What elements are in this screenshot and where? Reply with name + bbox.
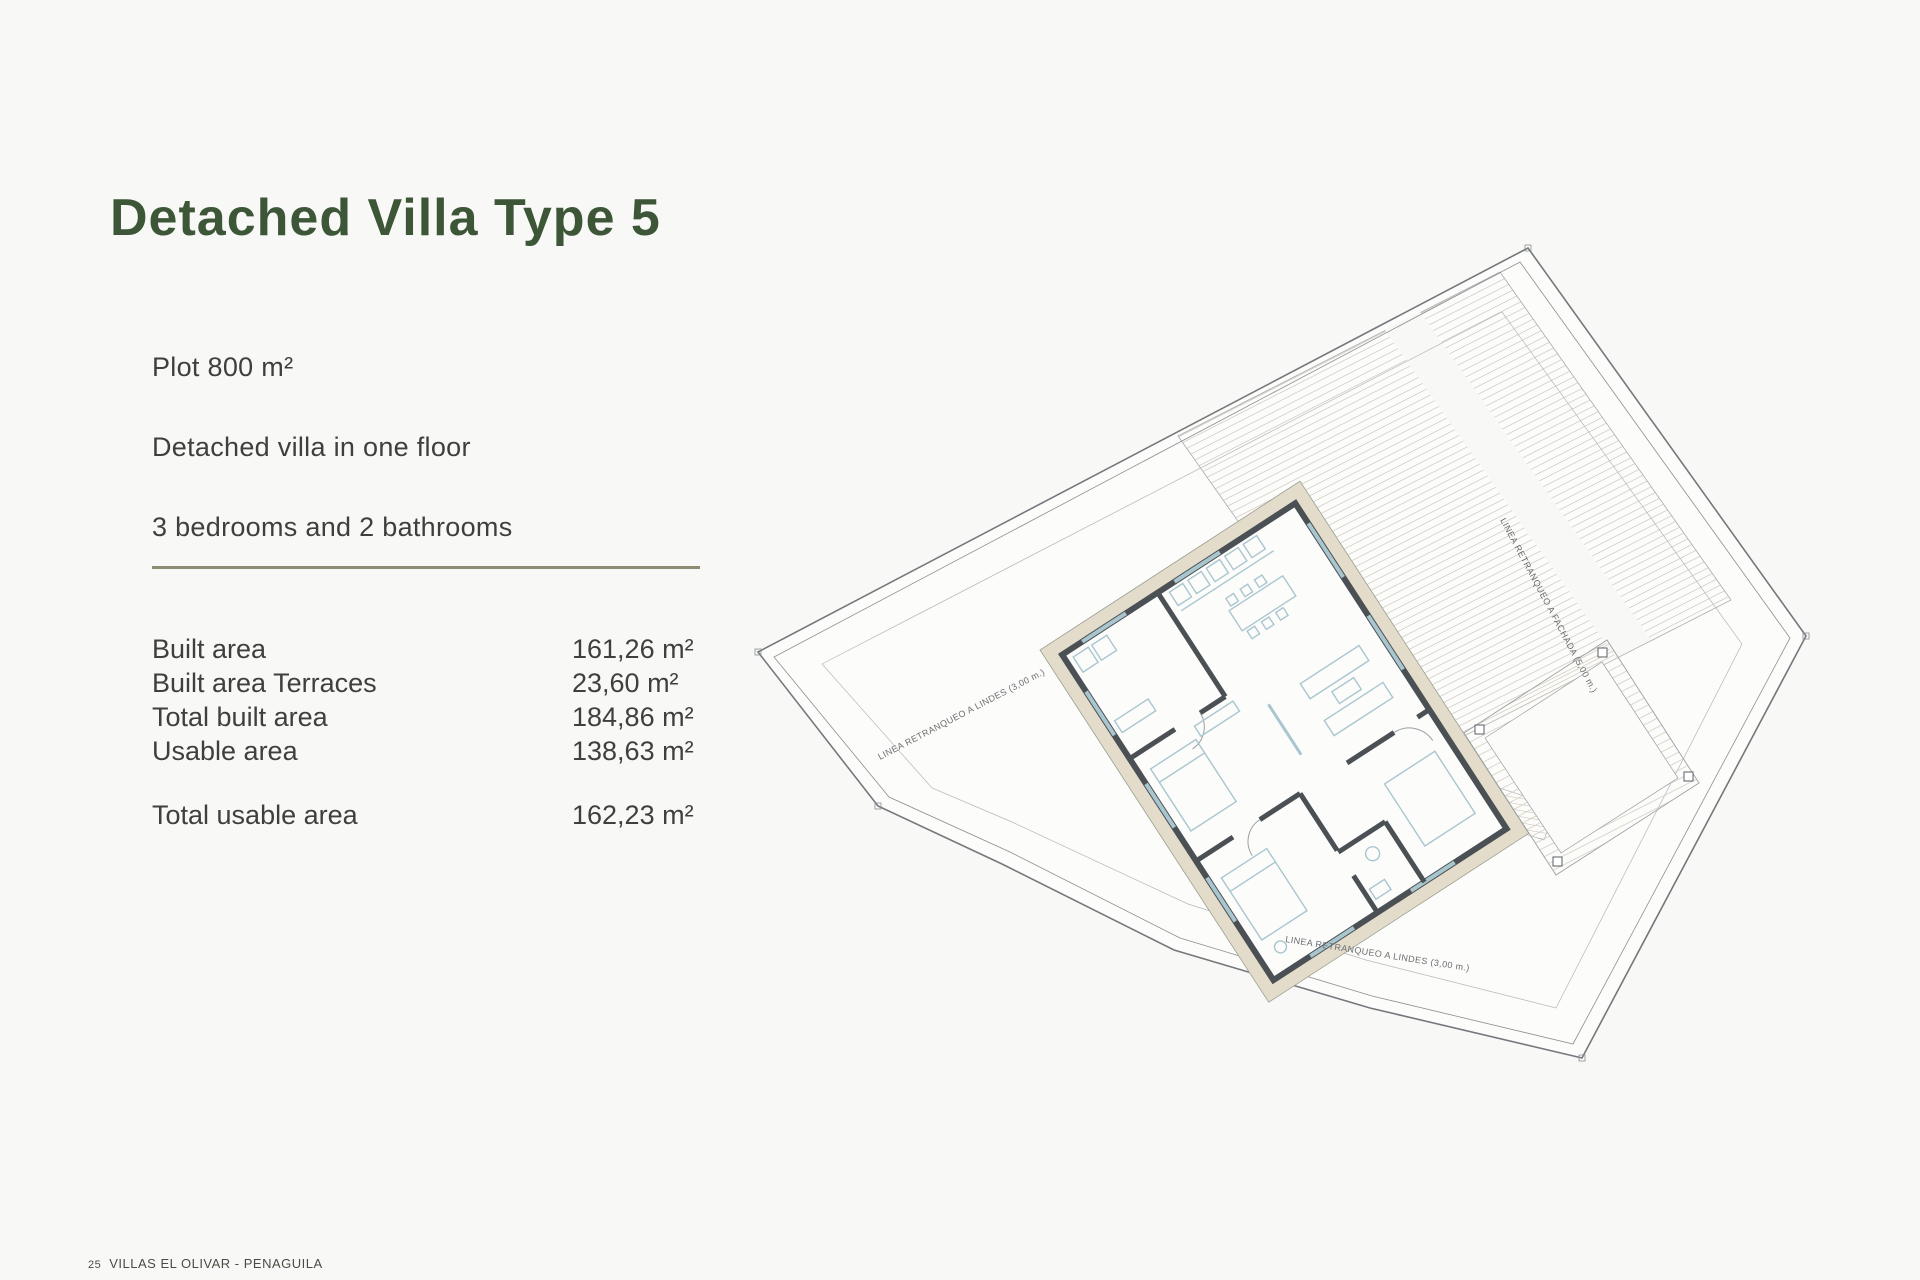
area-label: Built area Terraces: [152, 666, 572, 700]
page-number: 25: [88, 1259, 101, 1271]
page-footer: 25 VILLAS EL OLIVAR - PENAGUILA: [88, 1256, 323, 1271]
project-name: VILLAS EL OLIVAR - PENAGUILA: [109, 1256, 322, 1271]
area-value: 162,23 m²: [572, 798, 694, 832]
table-row: Total built area 184,86 m²: [152, 700, 694, 734]
divider-line: [152, 566, 700, 569]
areas-table: Built area 161,26 m² Built area Terraces…: [152, 632, 694, 832]
area-value: 23,60 m²: [572, 666, 679, 700]
area-value: 184,86 m²: [572, 700, 694, 734]
table-row: Built area Terraces 23,60 m²: [152, 666, 694, 700]
area-value: 161,26 m²: [572, 632, 694, 666]
rooms-desc-text: 3 bedrooms and 2 bathrooms: [152, 512, 513, 543]
page-title: Detached Villa Type 5: [110, 188, 661, 248]
brochure-page: LINEA RETRANQUEO A LINDES (3,00 m.) LINE…: [0, 0, 1920, 1280]
floor-desc-text: Detached villa in one floor: [152, 432, 471, 463]
area-label: Built area: [152, 632, 572, 666]
area-label: Usable area: [152, 734, 572, 768]
area-label: Total built area: [152, 700, 572, 734]
area-label: Total usable area: [152, 798, 572, 832]
table-row: Built area 161,26 m²: [152, 632, 694, 666]
table-row-total: Total usable area 162,23 m²: [152, 798, 694, 832]
table-row: Usable area 138,63 m²: [152, 734, 694, 768]
area-value: 138,63 m²: [572, 734, 694, 768]
plot-size-text: Plot 800 m²: [152, 352, 293, 383]
